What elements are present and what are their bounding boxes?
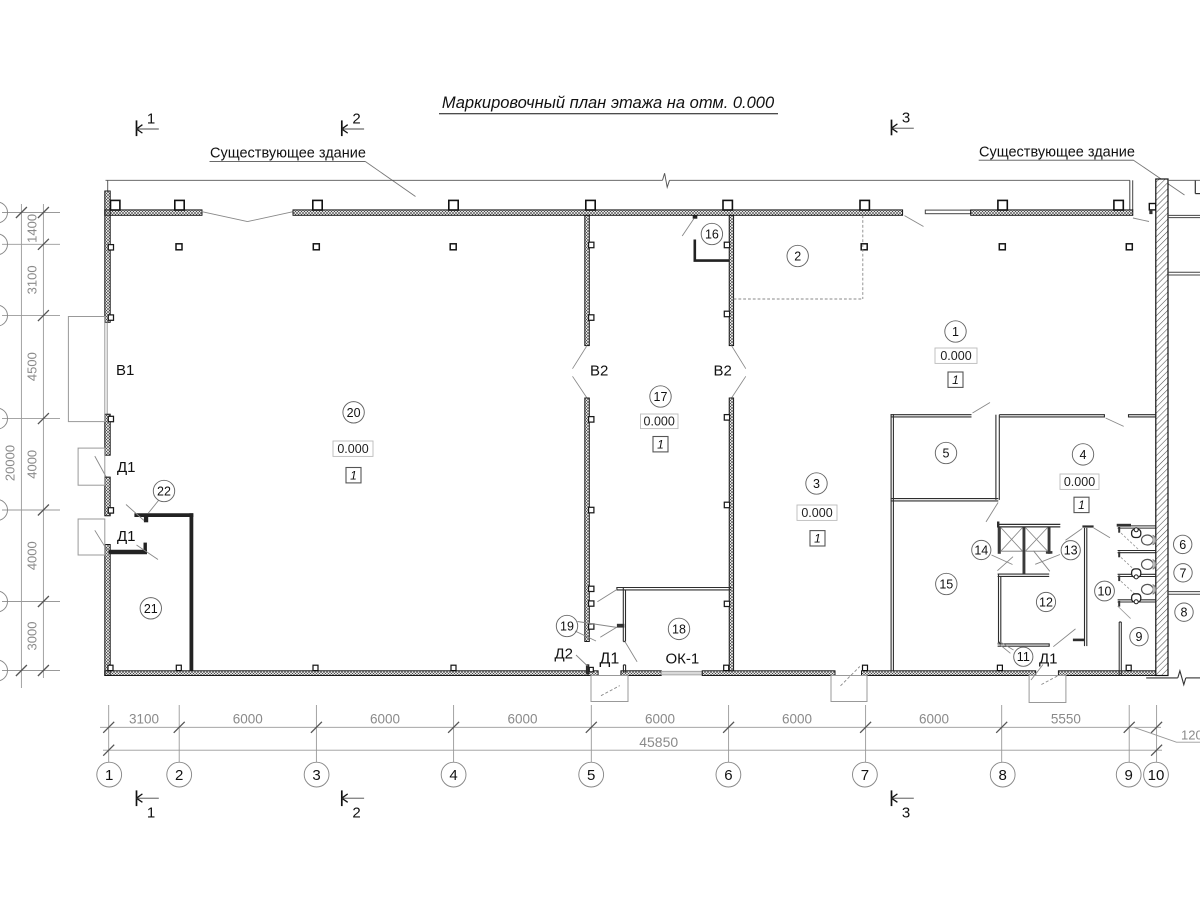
svg-text:6000: 6000	[233, 712, 263, 727]
svg-text:19: 19	[560, 620, 574, 634]
svg-text:8: 8	[1181, 606, 1188, 620]
svg-text:120: 120	[1181, 728, 1200, 743]
svg-text:В1: В1	[116, 362, 134, 379]
svg-text:6: 6	[724, 767, 732, 784]
svg-text:18: 18	[672, 622, 686, 636]
svg-text:3100: 3100	[129, 712, 159, 727]
svg-text:1: 1	[952, 325, 959, 339]
svg-text:5550: 5550	[1051, 712, 1081, 727]
svg-text:1: 1	[657, 438, 664, 452]
svg-text:45850: 45850	[639, 734, 678, 750]
svg-text:14: 14	[974, 544, 988, 558]
svg-text:4000: 4000	[25, 450, 40, 479]
svg-text:1: 1	[147, 111, 155, 128]
svg-text:6000: 6000	[919, 712, 949, 727]
svg-text:6000: 6000	[645, 712, 675, 727]
svg-text:1: 1	[350, 469, 357, 483]
svg-text:22: 22	[157, 485, 171, 499]
svg-text:10: 10	[1148, 767, 1165, 784]
svg-text:17: 17	[654, 390, 668, 404]
svg-text:3: 3	[813, 477, 820, 491]
svg-text:1: 1	[1078, 498, 1085, 512]
svg-text:В2: В2	[714, 362, 732, 379]
svg-text:0.000: 0.000	[337, 442, 368, 456]
svg-text:6000: 6000	[782, 712, 812, 727]
svg-text:13: 13	[1064, 544, 1078, 558]
svg-text:1: 1	[952, 373, 959, 387]
svg-text:Д1: Д1	[1039, 650, 1058, 667]
svg-text:0.000: 0.000	[1064, 475, 1095, 489]
svg-text:20: 20	[347, 406, 361, 420]
svg-text:3: 3	[902, 110, 910, 127]
svg-text:0.000: 0.000	[940, 349, 971, 363]
svg-text:5: 5	[943, 447, 950, 461]
svg-text:7: 7	[1180, 566, 1187, 580]
svg-text:Существующее здание: Существующее здание	[210, 146, 366, 162]
svg-text:4000: 4000	[25, 541, 40, 570]
svg-text:7: 7	[861, 767, 869, 784]
svg-text:1: 1	[814, 532, 821, 546]
svg-text:6000: 6000	[370, 712, 400, 727]
svg-text:Д1: Д1	[117, 459, 136, 476]
svg-text:0.000: 0.000	[644, 414, 675, 428]
svg-text:3: 3	[312, 767, 320, 784]
svg-text:Существующее здание: Существующее здание	[979, 145, 1135, 161]
svg-text:Д2: Д2	[555, 645, 574, 662]
svg-text:2: 2	[794, 250, 801, 264]
svg-text:3100: 3100	[25, 265, 40, 294]
svg-text:15: 15	[939, 578, 953, 592]
svg-text:8: 8	[999, 767, 1007, 784]
svg-text:5: 5	[587, 767, 595, 784]
svg-text:10: 10	[1098, 585, 1112, 599]
svg-text:16: 16	[705, 228, 719, 242]
svg-text:Д1: Д1	[117, 528, 136, 545]
svg-text:4: 4	[449, 767, 457, 784]
svg-text:3000: 3000	[25, 622, 40, 651]
svg-text:9: 9	[1125, 767, 1133, 784]
svg-text:1: 1	[147, 805, 155, 822]
svg-text:1400: 1400	[25, 214, 40, 243]
svg-text:Д1: Д1	[600, 650, 620, 667]
svg-text:Маркировочный план этажа на от: Маркировочный план этажа на отм. 0.000	[442, 94, 775, 112]
svg-text:12: 12	[1039, 596, 1053, 610]
svg-text:4500: 4500	[25, 352, 40, 381]
svg-text:4: 4	[1080, 448, 1087, 462]
svg-text:2: 2	[352, 111, 360, 128]
svg-text:20000: 20000	[3, 445, 18, 481]
svg-text:21: 21	[144, 602, 158, 616]
svg-text:1: 1	[105, 767, 113, 784]
svg-text:3: 3	[902, 805, 910, 822]
svg-text:6: 6	[1179, 538, 1186, 552]
svg-text:В2: В2	[590, 362, 608, 379]
svg-text:2: 2	[352, 805, 360, 822]
svg-text:6000: 6000	[507, 712, 537, 727]
svg-text:ОК-1: ОК-1	[666, 650, 700, 667]
svg-text:9: 9	[1136, 630, 1143, 644]
svg-text:11: 11	[1017, 650, 1030, 664]
svg-text:0.000: 0.000	[801, 506, 832, 520]
svg-text:2: 2	[175, 767, 183, 784]
